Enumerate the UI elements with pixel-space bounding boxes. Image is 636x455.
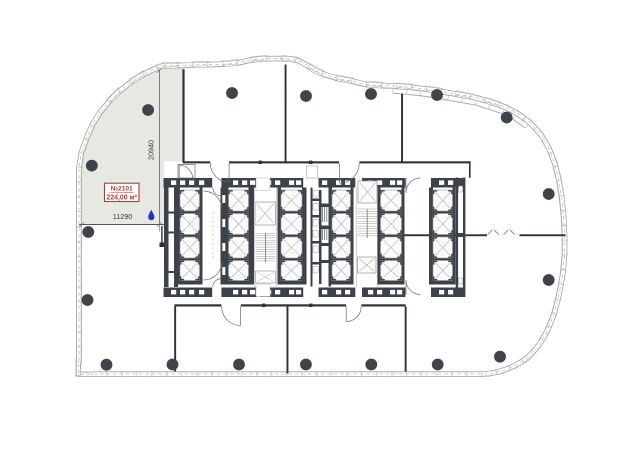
svg-text:11290: 11290 <box>113 212 132 221</box>
svg-text:224,00 м²: 224,00 м² <box>107 194 138 201</box>
svg-text:20940: 20940 <box>147 140 156 160</box>
svg-text:№2101: №2101 <box>111 186 133 193</box>
